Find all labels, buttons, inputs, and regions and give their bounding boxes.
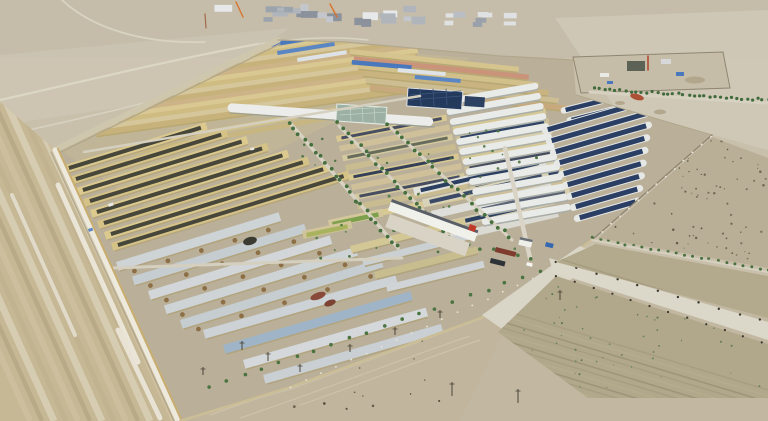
enclosure-blue-roof-2 (607, 81, 613, 84)
dirt-mound-2 (654, 110, 666, 115)
enclosure-ground (573, 52, 730, 93)
enclosure-mound (685, 77, 705, 84)
enclosure-blue-roof-1 (676, 72, 684, 76)
enclosure-shed-2 (661, 59, 671, 64)
aerial-photo (0, 0, 768, 421)
solar-roof-small (464, 96, 485, 107)
glasshouse (336, 104, 387, 124)
enclosure-building (627, 61, 645, 71)
dirt-mound-1 (615, 101, 625, 105)
enclosure-shed-1 (600, 73, 609, 77)
aerial-photo-canvas (0, 0, 768, 421)
